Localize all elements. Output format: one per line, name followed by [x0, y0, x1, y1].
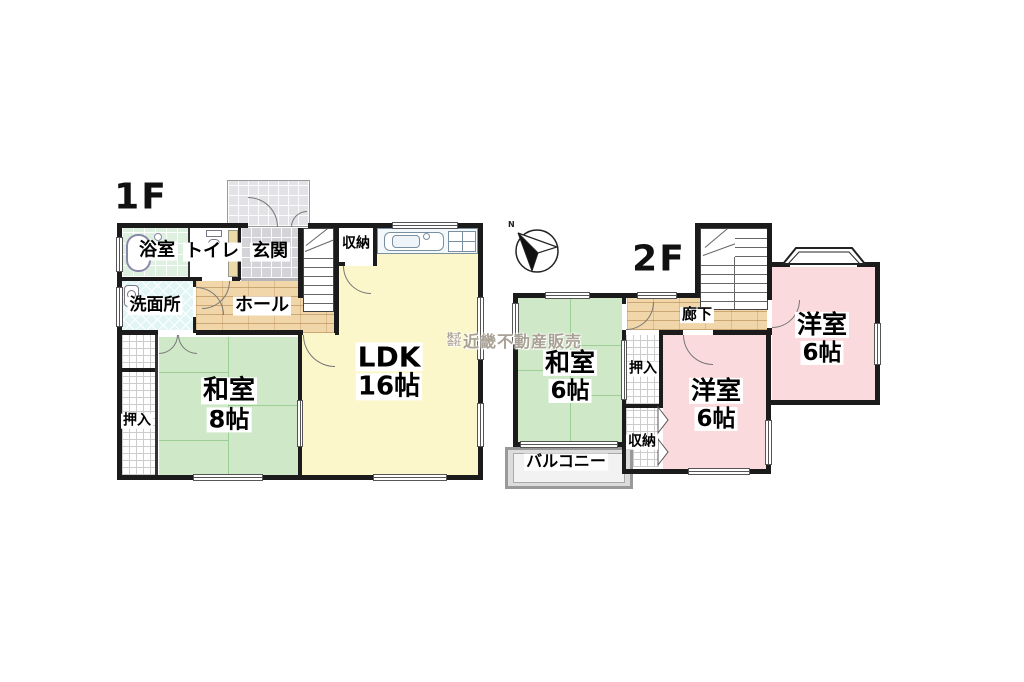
window	[116, 287, 123, 327]
entrance-step-line	[241, 278, 298, 281]
wall	[478, 360, 483, 403]
wall	[513, 442, 520, 447]
room-label-closet-1f: 押入	[121, 414, 153, 429]
stair-winder-line	[705, 228, 730, 248]
sliding-door	[297, 400, 303, 447]
window	[874, 323, 881, 365]
wall	[298, 447, 302, 475]
wall	[117, 330, 158, 335]
room-label-yoshitsu-right: 洋室	[795, 312, 849, 338]
watermark-prefix: 株式 会社	[447, 333, 461, 347]
wall	[193, 281, 196, 287]
room-label-yoshitsu-center: 洋室	[689, 378, 743, 404]
tatami-line	[159, 372, 228, 373]
wall	[622, 298, 626, 304]
compass-north-label: N	[508, 220, 515, 229]
wall	[155, 333, 158, 475]
company-watermark: 株式 会社 近畿不動産販売	[447, 328, 582, 352]
stove-icon	[448, 231, 476, 252]
window	[520, 441, 618, 448]
watermark-prefix-bottom: 会社	[447, 340, 461, 347]
wall	[117, 475, 193, 480]
room-label-washitsu-1f-size: 8帖	[207, 407, 252, 432]
room-label-yoshitsu-right-size: 6帖	[800, 341, 843, 365]
watermark-company: 近畿不動産販売	[463, 328, 582, 352]
toilet-icon	[206, 230, 222, 237]
stair-steps	[735, 233, 768, 310]
room-label-ldk: LDK	[356, 342, 423, 371]
wall	[117, 223, 122, 237]
window	[637, 292, 677, 299]
stair-steps	[304, 251, 334, 312]
wall	[122, 368, 155, 372]
kitchen-faucet-icon	[423, 233, 430, 240]
window	[373, 474, 447, 481]
wall	[590, 293, 637, 298]
window	[545, 292, 590, 299]
wall	[768, 400, 880, 405]
wall	[659, 335, 663, 407]
staircase-2f	[700, 228, 768, 310]
wall	[335, 330, 339, 335]
room-label-balcony: バルコニー	[524, 454, 608, 471]
wall	[513, 345, 518, 447]
north-arrow-icon	[510, 224, 562, 276]
stair-steps	[701, 263, 734, 310]
wall	[373, 228, 377, 266]
wall	[478, 223, 483, 297]
tatami-line	[159, 440, 228, 441]
room-label-washitsu-2f: 和室	[543, 350, 597, 376]
wall	[663, 469, 688, 474]
wall	[766, 465, 771, 474]
wall	[695, 223, 772, 228]
wall	[263, 475, 373, 480]
wall	[298, 333, 302, 400]
staircase-1f	[303, 228, 334, 312]
wall	[875, 262, 880, 323]
closet-1f-floor	[122, 333, 155, 475]
room-label-storage-2f: 収納	[626, 435, 658, 450]
wall	[308, 223, 392, 228]
room-label-washitsu-2f-size: 6帖	[548, 379, 591, 403]
bifold-door-icon	[657, 405, 670, 469]
room-label-toilet: トイレ	[183, 243, 241, 262]
room-label-hall: ホール	[233, 297, 291, 316]
room-label-yoshitsu-center-size: 6帖	[694, 407, 737, 431]
wall	[622, 330, 626, 340]
room-label-storage-1f: 収納	[340, 237, 372, 252]
window	[688, 468, 750, 475]
bay-window	[781, 243, 867, 265]
kitchen-sink-basin	[392, 235, 420, 248]
floor1-label: 1F	[114, 177, 168, 218]
wall	[766, 330, 771, 420]
wall	[875, 365, 880, 405]
ldk-floor-upper	[377, 254, 478, 333]
wall	[334, 228, 339, 333]
wall	[117, 277, 202, 281]
window	[765, 420, 772, 465]
floor2-label: 2F	[632, 239, 686, 280]
room-label-bath: 浴室	[137, 242, 177, 261]
wall	[513, 293, 518, 303]
wall	[196, 330, 303, 335]
window	[116, 237, 123, 272]
window	[193, 474, 263, 481]
wall	[339, 262, 345, 266]
room-label-closet-2f: 押入	[627, 362, 659, 377]
floor-plan-canvas: N 1F 浴室 トイレ 玄関 収納 洗面所 ホール LDK 16帖 和室 8帖 …	[0, 0, 1024, 682]
wall	[117, 327, 122, 480]
room-label-entrance: 玄関	[250, 243, 290, 262]
wall	[478, 447, 483, 480]
window	[392, 222, 458, 229]
window	[477, 403, 484, 447]
wall	[677, 293, 695, 298]
wall	[117, 223, 248, 228]
room-label-washitsu-1f: 和室	[201, 377, 257, 404]
wall	[713, 330, 772, 335]
room-label-corridor: 廊下	[680, 307, 714, 323]
room-label-ldk-size: 16帖	[356, 373, 422, 400]
wall	[298, 228, 303, 298]
wall	[622, 469, 663, 474]
wall	[695, 223, 700, 298]
room-label-washroom: 洗面所	[128, 297, 183, 315]
